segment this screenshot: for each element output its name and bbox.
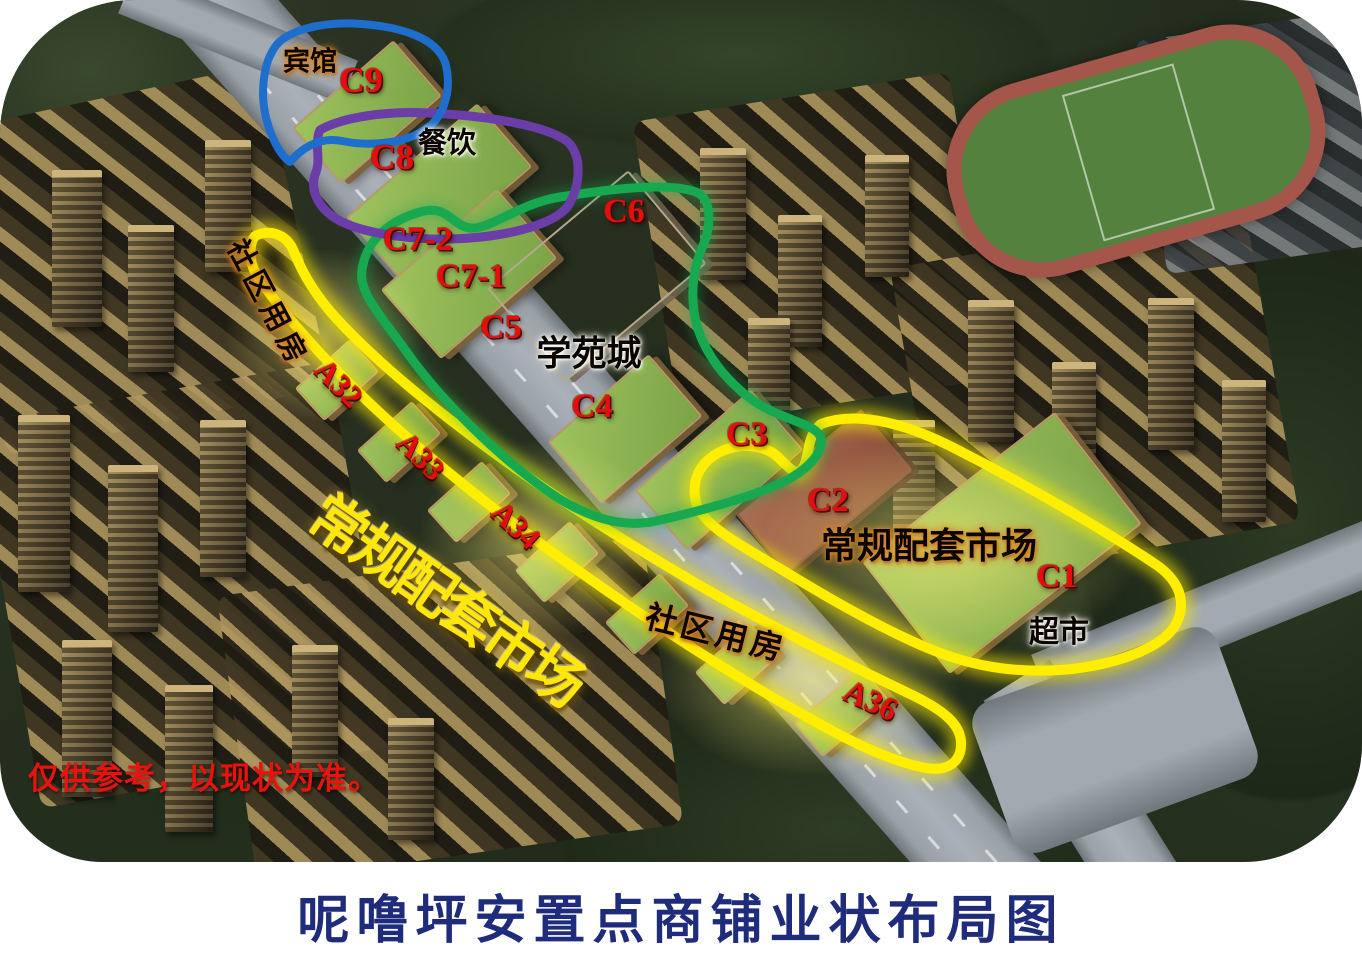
label-supermarket: 超市	[1029, 618, 1089, 648]
intersection	[965, 620, 1264, 859]
map-title: 呢噜坪安置点商铺业状布局图	[287, 874, 1074, 962]
disclaimer-text: 仅供参考，以现状为准。	[28, 753, 380, 798]
residential-tower	[388, 718, 434, 840]
label-c8: C8	[370, 139, 414, 175]
residential-tower	[52, 170, 102, 327]
residential-tower	[700, 148, 746, 280]
label-c6: C6	[603, 195, 645, 229]
label-xueyuan-city: 学苑城	[536, 337, 641, 372]
residential-tower	[1222, 380, 1266, 522]
label-c4: C4	[571, 390, 613, 424]
label-c2: C2	[807, 484, 849, 518]
residential-tower	[865, 155, 909, 277]
label-c9: C9	[339, 62, 383, 98]
residential-tower	[18, 415, 70, 592]
page: 宾馆 C9 C8 餐饮 C7-2 C7-1 C6 C5 学苑城 C4 C3 C2…	[0, 0, 1362, 962]
residential-tower	[128, 225, 174, 372]
label-c7-1: C7-1	[436, 260, 506, 294]
residential-tower	[108, 465, 158, 632]
label-c7-2: C7-2	[383, 223, 453, 257]
label-c3: C3	[726, 418, 768, 452]
residential-tower	[1148, 298, 1194, 450]
label-c5: C5	[480, 311, 522, 345]
site-aerial-map: 宾馆 C9 C8 餐饮 C7-2 C7-1 C6 C5 学苑城 C4 C3 C2…	[0, 0, 1362, 862]
residential-tower	[968, 300, 1014, 442]
label-hotel: 宾馆	[283, 49, 337, 76]
label-c1: C1	[1036, 560, 1078, 594]
residential-tower	[200, 420, 246, 577]
label-dining: 餐饮	[418, 130, 476, 159]
label-market-east: 常规配套市场	[821, 528, 1037, 564]
caption-area: 呢噜坪安置点商铺业状布局图	[0, 874, 1362, 962]
